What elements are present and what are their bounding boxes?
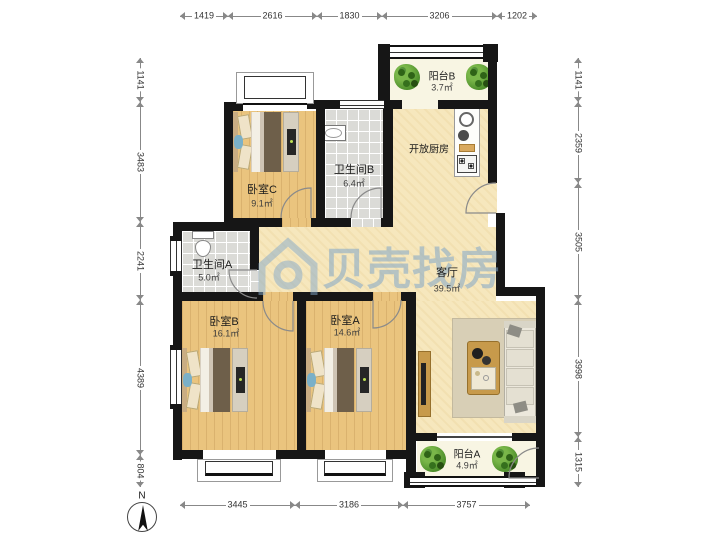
wall [316,102,325,227]
wall [383,100,393,227]
bedroomC-label: 卧室C [247,181,277,197]
dim-right-1: 1141 [572,58,584,102]
dim-right-4: 3998 [572,300,584,437]
compass [127,502,157,532]
bathroomB-area: 6.4㎡ [343,177,365,190]
dim-right-3: 3505 [572,183,584,300]
balconyA-railing [410,476,536,487]
tv [421,363,426,405]
floor-plan: 贝壳找房 卧室C 9.1㎡ 卫生间B 6.4㎡ 卫生间A 5.0㎡ 卧室B 16… [0,0,720,540]
dim-right-5: 1315 [572,437,584,487]
bathroomA-area: 5.0㎡ [198,271,220,284]
kitchen-sink [459,112,474,127]
wall [224,102,233,227]
livingRoom-label: 客厅 [436,264,458,280]
dim-bottom-3: 3757 [403,499,530,511]
bed-part [213,348,230,412]
bathroomA-window [170,241,182,271]
plant [420,446,446,472]
kitchen-label: 开放厨房 [409,141,449,156]
wall [173,450,203,459]
dim-bottom-2: 3186 [295,499,403,511]
balconyA-area: 4.9㎡ [456,459,478,472]
wall [488,58,497,183]
door-gap [282,218,311,227]
dim-top-1: 1419 [180,10,228,22]
sofa-cushion [506,368,534,386]
bedroomC-area: 9.1㎡ [251,197,273,210]
watermark-text: 贝壳找房 [322,248,502,292]
entrance-gap [488,183,497,213]
dim-left-3: 2241 [134,222,146,300]
wall [512,433,536,441]
wall [297,301,306,450]
dim-right-2: 2359 [572,102,584,183]
dim-left-1: 1141 [134,58,146,102]
cutting-board [459,144,475,152]
burner [468,163,474,169]
bathroomB-label: 卫生间B [334,161,374,177]
kettle [482,356,491,365]
dim-top-5: 1202 [497,10,537,22]
bathroomB-window [340,100,384,109]
compass-needle-icon [135,505,151,531]
tray-item [475,371,480,376]
bed-part [307,373,316,387]
dim-top-2: 2616 [228,10,317,22]
bed-part [183,373,192,387]
plant [394,64,420,90]
bedroomA-area: 14.6㎡ [334,326,361,339]
bay-window-top-inner [244,76,306,99]
dim-top-4: 3206 [382,10,497,22]
kitchen-pot [458,130,469,141]
bed-part [290,140,293,143]
wall [325,218,351,227]
wall [536,287,545,487]
bay-window-bottom-B-inner [205,461,273,476]
toilet-tank [192,231,214,239]
dim-left-5: 804 [134,455,146,487]
burner [459,158,465,164]
wall [311,218,325,227]
balconyB-window [390,45,483,59]
bedroomB-window [170,350,182,404]
door-gap [250,270,259,292]
compass-n-label: N [138,491,145,502]
bed-part [264,112,281,172]
sofa-cushion [506,349,534,367]
sofa-armrest [504,416,536,423]
plant [492,446,518,472]
wall [173,292,263,301]
door-gap [351,218,381,227]
tray-item [483,375,489,381]
wall [381,218,393,227]
wall [224,218,282,227]
balconyB-area: 3.7㎡ [431,81,453,94]
bed-part [234,135,243,149]
wall [406,433,437,441]
wall [406,292,416,487]
dim-left-2: 3483 [134,102,146,222]
door-gap [263,292,293,301]
dim-left-4: 4389 [134,300,146,455]
wall [276,450,325,459]
livingRoom-area: 39.5㎡ [434,282,461,295]
bed-part [337,348,354,412]
door-gap [402,100,438,109]
washbasin-bowl [325,128,342,138]
bay-window-bottom-A-inner [324,461,386,476]
bedroomB-area: 16.1㎡ [213,327,240,340]
dim-top-3: 1830 [317,10,382,22]
wall [250,231,259,270]
kettle [472,348,483,359]
dim-bottom-1: 3445 [180,499,295,511]
bed-part [239,378,242,381]
bed-part [363,378,366,381]
